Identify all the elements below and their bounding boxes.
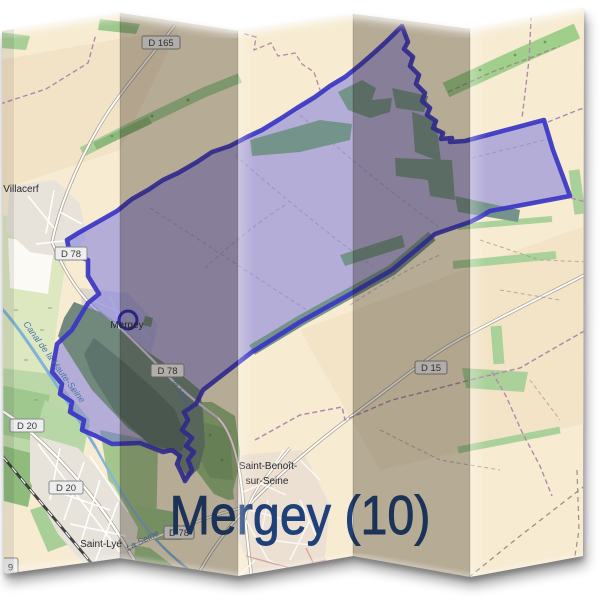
- svg-text:D 78: D 78: [61, 249, 81, 260]
- svg-text:D 20: D 20: [17, 421, 37, 432]
- svg-text:D 20: D 20: [56, 483, 76, 494]
- svg-text:Saint-Lyé: Saint-Lyé: [80, 539, 122, 550]
